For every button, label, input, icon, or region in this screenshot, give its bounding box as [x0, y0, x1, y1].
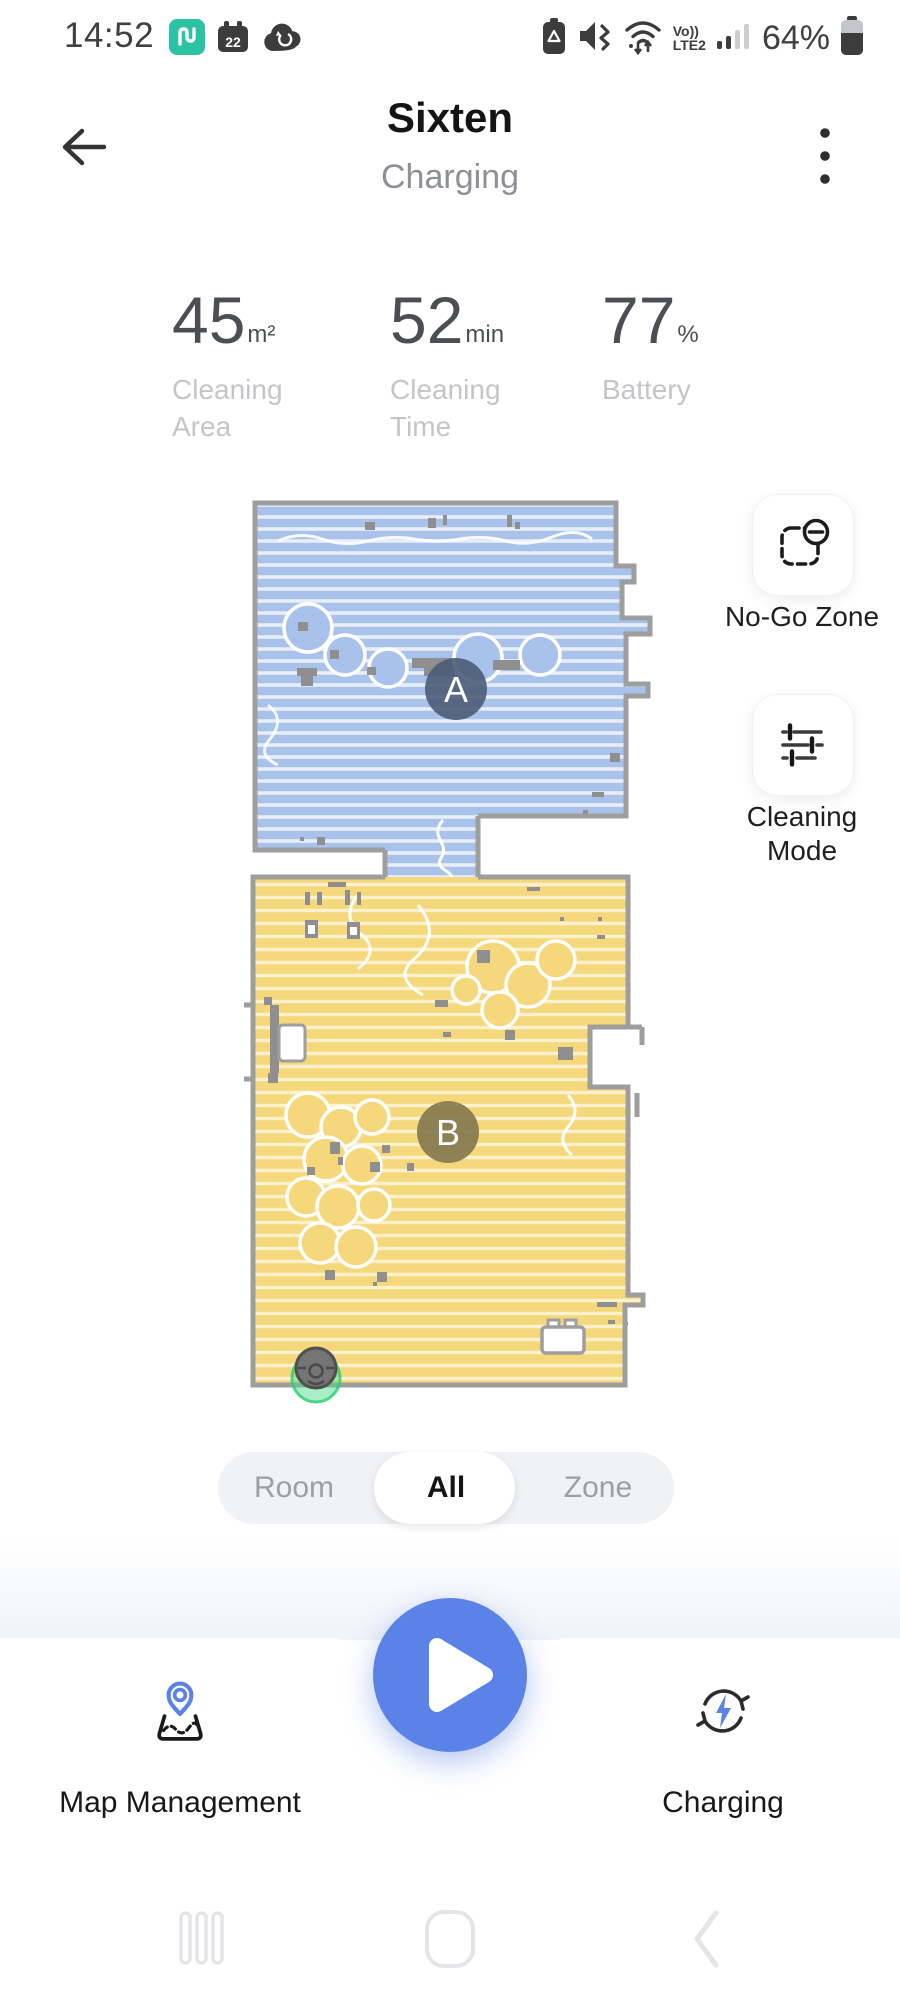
room-a-label[interactable]: A — [425, 658, 487, 720]
more-menu-button[interactable] — [818, 126, 832, 193]
kebab-menu-icon — [818, 126, 832, 188]
tab-room[interactable]: Room — [218, 1452, 370, 1524]
mi-home-app-icon — [168, 18, 206, 61]
start-cleaning-button[interactable] — [373, 1598, 527, 1752]
map-management-label[interactable]: Map Management — [50, 1786, 310, 1820]
battery-icon — [840, 16, 864, 61]
svg-text:22: 22 — [225, 34, 241, 50]
mode-switch[interactable]: Room All Zone — [218, 1452, 674, 1524]
robot-marker[interactable] — [296, 1348, 336, 1388]
battery-value: 77 — [602, 282, 675, 358]
robot-vacuum-screen: 14:52 22 — [0, 0, 900, 2000]
cleaning-mode-label[interactable]: Cleaning Mode — [722, 800, 882, 868]
map-management-icon — [148, 1680, 212, 1744]
page-title: Sixten — [0, 94, 900, 142]
svg-text:A: A — [444, 669, 468, 710]
cleaning-area-label: Cleaning Area — [172, 372, 332, 446]
map-management-button[interactable] — [148, 1680, 212, 1749]
back-nav-icon — [697, 1913, 716, 1965]
charging-button[interactable] — [691, 1680, 755, 1749]
play-icon — [373, 1598, 527, 1752]
cleaning-map[interactable]: A — [238, 475, 658, 1415]
back-button[interactable] — [58, 124, 110, 175]
battery-label: Battery — [602, 372, 762, 409]
home-nav-icon — [427, 1912, 473, 1966]
recents-nav-icon — [181, 1913, 222, 1963]
stat-cleaning-area: 45 m² Cleaning Area — [172, 282, 332, 446]
cleaning-time-unit: min — [465, 321, 504, 349]
battery-saver-icon — [541, 17, 567, 60]
cleaning-area-value: 45 — [172, 282, 245, 358]
volte-indicator: Vo)) LTE2 — [673, 24, 706, 53]
stat-cleaning-time: 52 min Cleaning Time — [390, 282, 550, 446]
charging-icon — [691, 1680, 755, 1744]
mute-vibrate-icon — [577, 18, 613, 59]
status-time: 14:52 — [64, 16, 154, 56]
wifi-icon — [623, 17, 663, 60]
device-status: Charging — [0, 158, 900, 197]
back-arrow-icon — [58, 124, 110, 170]
signal-strength-icon — [716, 22, 752, 55]
cloud-sync-icon — [262, 22, 304, 59]
room-a[interactable]: A — [255, 503, 650, 882]
no-go-zone-button[interactable] — [752, 494, 854, 596]
android-nav-bar — [0, 1905, 900, 1990]
svg-text:B: B — [436, 1112, 460, 1153]
calendar-icon: 22 — [216, 20, 250, 59]
cleaning-area-unit: m² — [247, 321, 275, 349]
cleaning-mode-icon — [775, 717, 831, 773]
tab-all[interactable]: All — [370, 1452, 522, 1524]
status-icons-right: Vo)) LTE2 64% — [541, 16, 864, 60]
cleaning-mode-button[interactable] — [752, 694, 854, 796]
cleaning-time-value: 52 — [390, 282, 463, 358]
room-b-label[interactable]: B — [417, 1101, 479, 1163]
no-go-zone-icon — [775, 517, 831, 573]
battery-unit: % — [677, 321, 698, 349]
room-b[interactable]: B — [253, 877, 643, 1385]
tab-zone[interactable]: Zone — [522, 1452, 674, 1524]
stat-battery: 77 % Battery — [602, 282, 762, 409]
no-go-zone-label[interactable]: No-Go Zone — [722, 600, 882, 634]
battery-percent: 64% — [762, 19, 830, 58]
cleaning-time-label: Cleaning Time — [390, 372, 550, 446]
charging-label[interactable]: Charging — [623, 1786, 823, 1820]
